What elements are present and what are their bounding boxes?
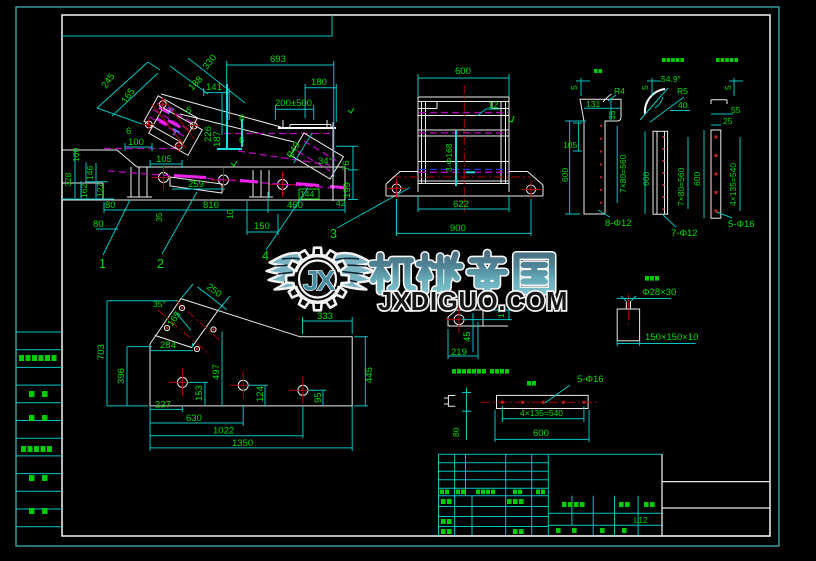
svg-text:R4: R4 [614, 86, 625, 96]
svg-text:JXDIGUO.COM: JXDIGUO.COM [378, 288, 568, 316]
svg-text:131: 131 [586, 99, 600, 109]
svg-text:1022: 1022 [213, 426, 234, 437]
svg-text:6: 6 [126, 126, 131, 137]
svg-text:2: 2 [157, 257, 164, 271]
svg-text:600: 600 [641, 172, 651, 186]
svg-text:600: 600 [533, 428, 549, 439]
svg-text:259: 259 [188, 179, 204, 190]
svg-text:146: 146 [85, 166, 95, 180]
svg-text:Φ28×30: Φ28×30 [642, 287, 676, 298]
svg-text:35: 35 [607, 110, 617, 120]
svg-text:80: 80 [93, 219, 104, 230]
svg-text:95: 95 [313, 392, 324, 403]
svg-text:162: 162 [79, 184, 89, 198]
svg-text:810: 810 [203, 200, 219, 211]
svg-text:153: 153 [194, 385, 205, 401]
svg-text:L12: L12 [634, 516, 648, 525]
svg-text:5: 5 [640, 85, 650, 90]
svg-text:600: 600 [455, 66, 471, 77]
svg-text:80: 80 [105, 200, 116, 211]
svg-text:5: 5 [569, 85, 579, 90]
svg-text:5: 5 [723, 85, 733, 90]
svg-text:199: 199 [342, 182, 353, 198]
svg-text:497: 497 [211, 364, 222, 380]
svg-text:25: 25 [723, 116, 733, 126]
svg-text:284: 284 [160, 340, 176, 351]
svg-text:703: 703 [96, 344, 107, 360]
svg-text:4×135=540: 4×135=540 [728, 163, 738, 206]
svg-text:693: 693 [270, 54, 286, 65]
svg-text:8-Φ12: 8-Φ12 [605, 218, 632, 229]
svg-text:124: 124 [255, 386, 266, 402]
svg-text:200±500: 200±500 [275, 98, 312, 109]
svg-text:80: 80 [451, 427, 461, 437]
svg-text:42: 42 [336, 198, 346, 208]
svg-text:900: 900 [450, 223, 466, 234]
svg-text:141: 141 [206, 82, 222, 93]
svg-text:7×80=560: 7×80=560 [618, 154, 628, 193]
svg-text:3-Φ168: 3-Φ168 [444, 143, 454, 172]
svg-text:237: 237 [155, 400, 171, 411]
svg-text:4×135=540: 4×135=540 [520, 408, 563, 418]
svg-text:1: 1 [99, 257, 106, 271]
svg-text:34°: 34° [318, 156, 333, 167]
svg-text:445: 445 [364, 367, 375, 383]
svg-text:187: 187 [212, 131, 223, 147]
svg-text:630: 630 [186, 413, 202, 424]
svg-text:100: 100 [128, 137, 144, 148]
svg-text:45: 45 [462, 331, 473, 342]
svg-text:55: 55 [731, 105, 741, 115]
svg-text:105: 105 [156, 154, 172, 165]
svg-text:5-Φ16: 5-Φ16 [728, 219, 755, 230]
svg-text:127: 127 [95, 183, 105, 197]
svg-text:328: 328 [63, 173, 73, 187]
svg-text:6: 6 [186, 105, 191, 116]
svg-text:460: 460 [287, 200, 303, 211]
svg-text:1350: 1350 [232, 438, 253, 449]
svg-text:105: 105 [563, 140, 577, 150]
svg-text:JX: JX [303, 265, 336, 296]
svg-text:622: 622 [453, 199, 469, 210]
svg-text:35: 35 [154, 212, 164, 222]
svg-text:7×80=560: 7×80=560 [676, 167, 686, 206]
svg-text:4: 4 [262, 249, 269, 263]
svg-text:150×150×10: 150×150×10 [645, 332, 698, 343]
svg-text:R5: R5 [677, 86, 688, 96]
svg-text:150: 150 [254, 221, 270, 232]
svg-text:76: 76 [341, 160, 352, 171]
svg-text:54.9°: 54.9° [661, 74, 681, 84]
svg-text:333: 333 [317, 311, 333, 322]
svg-text:3: 3 [330, 227, 337, 241]
svg-text:219: 219 [451, 347, 467, 358]
svg-text:7-Φ12: 7-Φ12 [671, 228, 698, 239]
svg-text:600: 600 [560, 168, 570, 182]
svg-text:100: 100 [71, 148, 81, 162]
svg-text:10: 10 [225, 209, 235, 219]
svg-text:600: 600 [692, 172, 702, 186]
svg-text:180: 180 [311, 77, 327, 88]
svg-text:5-Φ16: 5-Φ16 [577, 374, 604, 385]
svg-text:396: 396 [116, 368, 127, 384]
svg-text:40: 40 [678, 100, 688, 110]
